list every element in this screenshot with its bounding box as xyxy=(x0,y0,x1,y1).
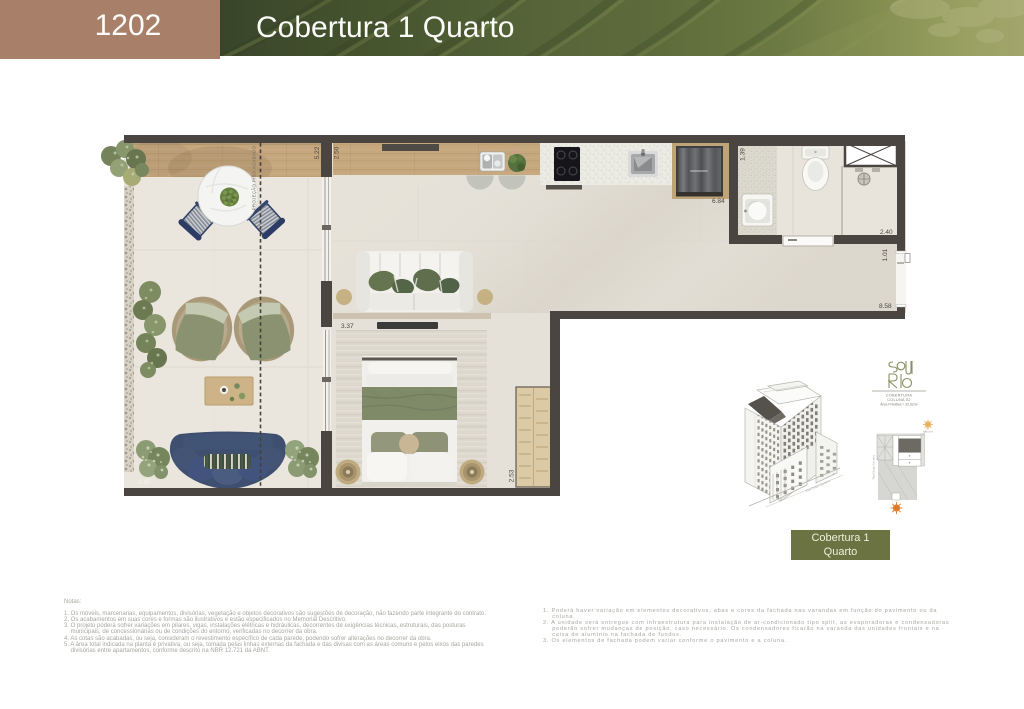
svg-text:1.01: 1.01 xyxy=(882,248,889,261)
svg-text:Área Privativa = 32,92m²: Área Privativa = 32,92m² xyxy=(880,403,918,407)
svg-text:3.37: 3.37 xyxy=(341,323,354,330)
svg-text:Rua Diogo Carneiro: Rua Diogo Carneiro xyxy=(872,454,876,479)
svg-text:6.84: 6.84 xyxy=(712,198,725,205)
svg-text:Nascente: Nascente xyxy=(923,431,934,434)
svg-text:COBERTURA: COBERTURA xyxy=(886,394,913,398)
svg-text:PROJEÇÃO PISO ACABADO: PROJEÇÃO PISO ACABADO xyxy=(252,145,257,210)
svg-text:1.39: 1.39 xyxy=(740,148,747,161)
svg-text:COLUNA 02: COLUNA 02 xyxy=(887,398,911,402)
svg-text:2.53: 2.53 xyxy=(509,469,516,482)
svg-text:5.22: 5.22 xyxy=(314,146,321,159)
svg-text:2.85: 2.85 xyxy=(138,479,151,486)
svg-text:2.50: 2.50 xyxy=(334,146,341,159)
svg-text:2.40: 2.40 xyxy=(880,229,893,236)
svg-text:8.58: 8.58 xyxy=(879,303,892,310)
